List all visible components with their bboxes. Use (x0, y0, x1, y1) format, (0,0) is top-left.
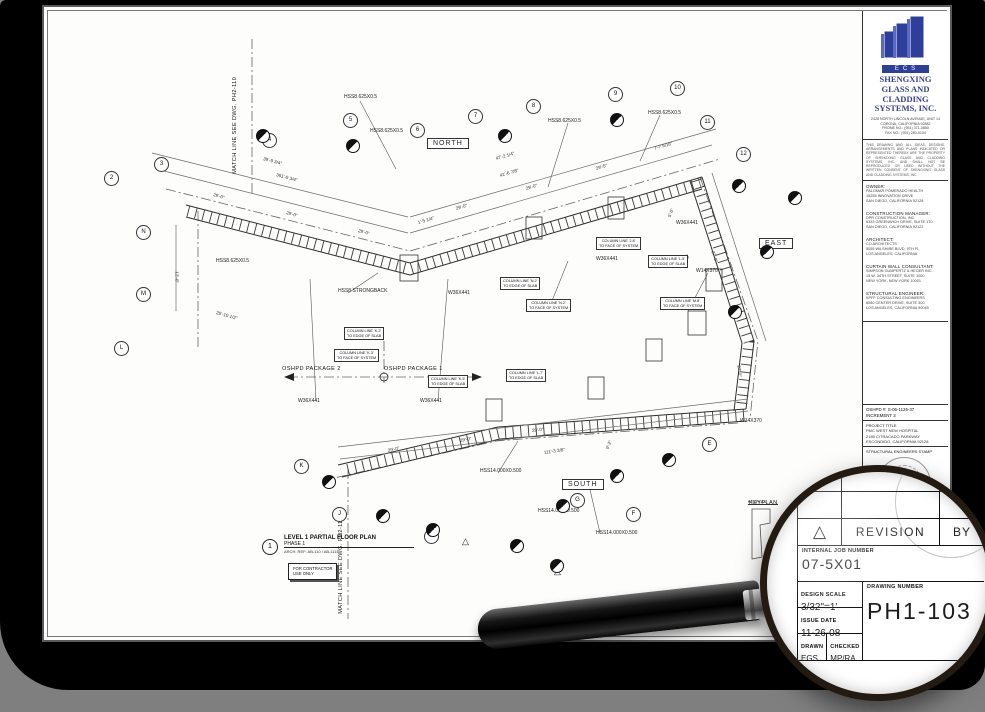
stamp-label: STRUCTURAL ENGINEERS STAMP (866, 449, 945, 454)
contractor-use-box-line: USE ONLY (293, 571, 332, 576)
dimension-lines (152, 129, 766, 459)
directory-section-line: SAN DIEGO, CALIFORNIA 92122 (866, 225, 945, 230)
title-block-spacer (863, 322, 948, 404)
directory-section: CURTAIN WALL CONSULTANT:SIMPSON GUMPERTZ… (866, 264, 945, 284)
screenshot-stage: HSS8.625X0.5HSS8.625X0.5HSS8.625X0.5HSS8… (0, 0, 985, 712)
company-address: 2428 NORTH LINCOLN AVENUE, UNIT 14CORONA… (865, 117, 946, 136)
grid-centerlines (166, 39, 758, 619)
plan-title-group: 1 LEVEL 1 PARTIAL FLOOR PLAN PHASE 1 ARC… (284, 535, 414, 554)
contractor-use-box: FOR CONTRACTORUSE ONLY (288, 563, 337, 580)
project-title-lines-line: ESCONDIDO, CALIFORNIA 92128 (866, 439, 945, 444)
floor-plan-area: HSS8.625X0.5HSS8.625X0.5HSS8.625X0.5HSS8… (48, 11, 860, 635)
buildings-logo-icon (876, 15, 936, 59)
directory-section: CONSTRUCTION MANAGER:DPR CONSTRUCTION, I… (866, 211, 945, 231)
leader-lines (310, 101, 708, 533)
lens-glare (767, 472, 985, 694)
plan-linework (48, 11, 860, 635)
plan-number-bubble: 1 (262, 539, 278, 555)
company-name-line: SYSTEMS, INC. (865, 104, 946, 114)
plan-arch-ref: ARCH. REF: AB-110 / AB-111E (284, 547, 414, 554)
directory-section-line: LOS ANGELES, CALIFORNIA 90045 (866, 306, 945, 311)
project-title-lines: PMC WEST NEW HOSPITAL2185 CITRACADO PARK… (866, 428, 945, 444)
directory-section-line: SAN DIEGO, CALIFORNIA 92128 (866, 199, 945, 204)
directory-section: STRUCTURAL ENGINEER:KPFF CONSULTING ENGI… (866, 291, 945, 311)
oshpd-number-box: OSHPD #: S-06-1126-37 INCREMENT 3 (863, 404, 948, 421)
company-address-line: FAX NO.: (951) 280-0104 (865, 131, 946, 136)
directory-section-line: LOS ANGELES, CALIFORNIA (866, 252, 945, 257)
curtainwall-band-edges (186, 177, 754, 477)
directory-section: OWNER:PALOMAR POMERADO HEALTH15255 INNOV… (866, 184, 945, 204)
legal-disclaimer: THIS DRAWING AND ALL IDEAS, DESIGNS, ARR… (863, 140, 948, 181)
company-logo: ECS SHENGXINGGLASS ANDCLADDINGSYSTEMS, I… (863, 11, 948, 140)
company-name: SHENGXINGGLASS ANDCLADDINGSYSTEMS, INC. (865, 75, 946, 114)
project-title-box: PROJECT TITLE PMC WEST NEW HOSPITAL2185 … (863, 421, 948, 447)
directory-section: ARCHITECT:CO ARCHITECTS5055 WILSHIRE BLV… (866, 237, 945, 257)
oshpd-increment: INCREMENT 3 (866, 413, 945, 419)
directory-section-line: NEW YORK, NEW YORK 10001 (866, 279, 945, 284)
project-directory: OWNER:PALOMAR POMERADO HEALTH15255 INNOV… (863, 181, 948, 322)
magnifier-lens[interactable]: △ REVISION BY INTERNAL JOB NUMBER 07-5X0… (760, 465, 985, 701)
logo-ecs-text: ECS (882, 65, 929, 73)
